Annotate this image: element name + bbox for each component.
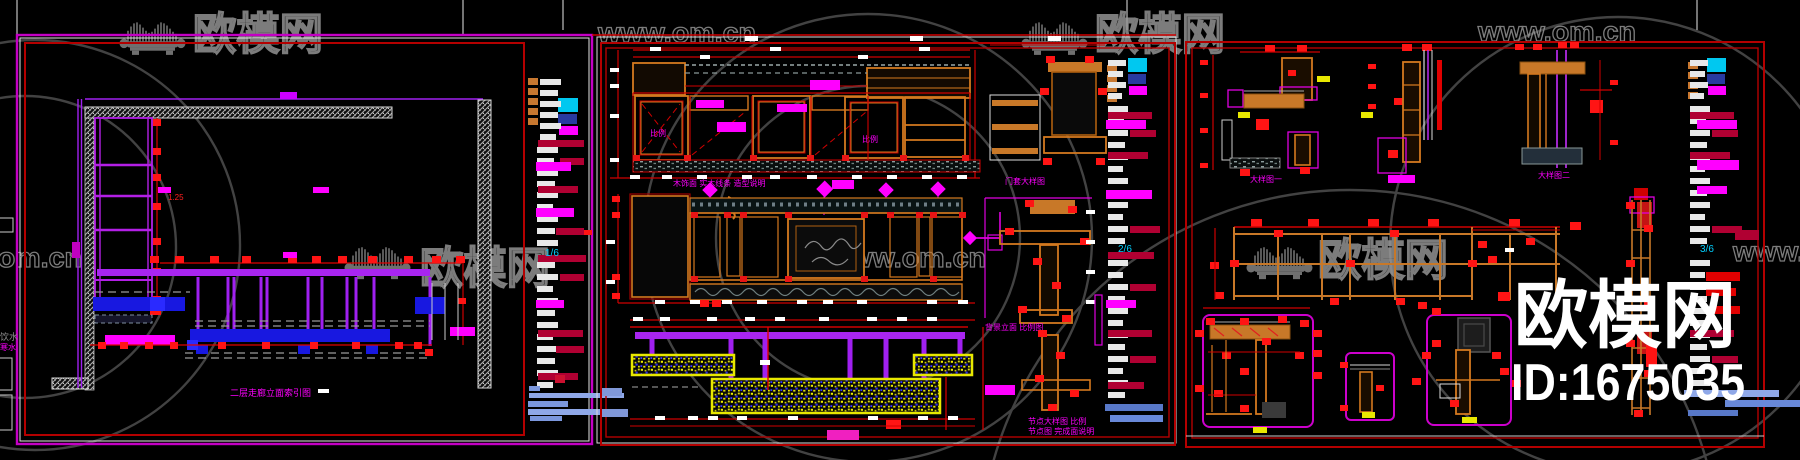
svg-text:背景立面 比例图: 背景立面 比例图 — [985, 322, 1043, 332]
svg-text:饮水: 饮水 — [0, 331, 18, 342]
svg-text:欧模网: 欧模网 — [1514, 274, 1736, 357]
svg-text:节点大样图 比例: 节点大样图 比例 — [1028, 416, 1086, 426]
svg-text:ID:1675035: ID:1675035 — [1511, 354, 1745, 412]
svg-text:比例: 比例 — [650, 128, 666, 138]
svg-text:二层走廊立面索引图: 二层走廊立面索引图 — [230, 387, 311, 398]
svg-text:1.25: 1.25 — [168, 193, 184, 202]
svg-text:3/6: 3/6 — [1700, 244, 1714, 255]
svg-text:www.om.cn: www.om.cn — [0, 242, 82, 273]
svg-text:大样图一: 大样图一 — [1250, 174, 1282, 184]
svg-text:木饰面 实木线条 造型说明: 木饰面 实木线条 造型说明 — [673, 178, 765, 188]
svg-text:寒水: 寒水 — [0, 342, 16, 352]
svg-text:大样图二: 大样图二 — [1538, 170, 1570, 180]
svg-text:比例: 比例 — [862, 134, 878, 144]
svg-text:门套大样图: 门套大样图 — [1005, 176, 1045, 186]
svg-text:www.o: www.o — [1732, 236, 1800, 267]
svg-text:节点图 完成面说明: 节点图 完成面说明 — [1028, 426, 1094, 436]
svg-text:1/6: 1/6 — [545, 248, 559, 259]
svg-text:2/6: 2/6 — [1118, 244, 1132, 255]
svg-text:欧模网: 欧模网 — [1318, 236, 1448, 285]
